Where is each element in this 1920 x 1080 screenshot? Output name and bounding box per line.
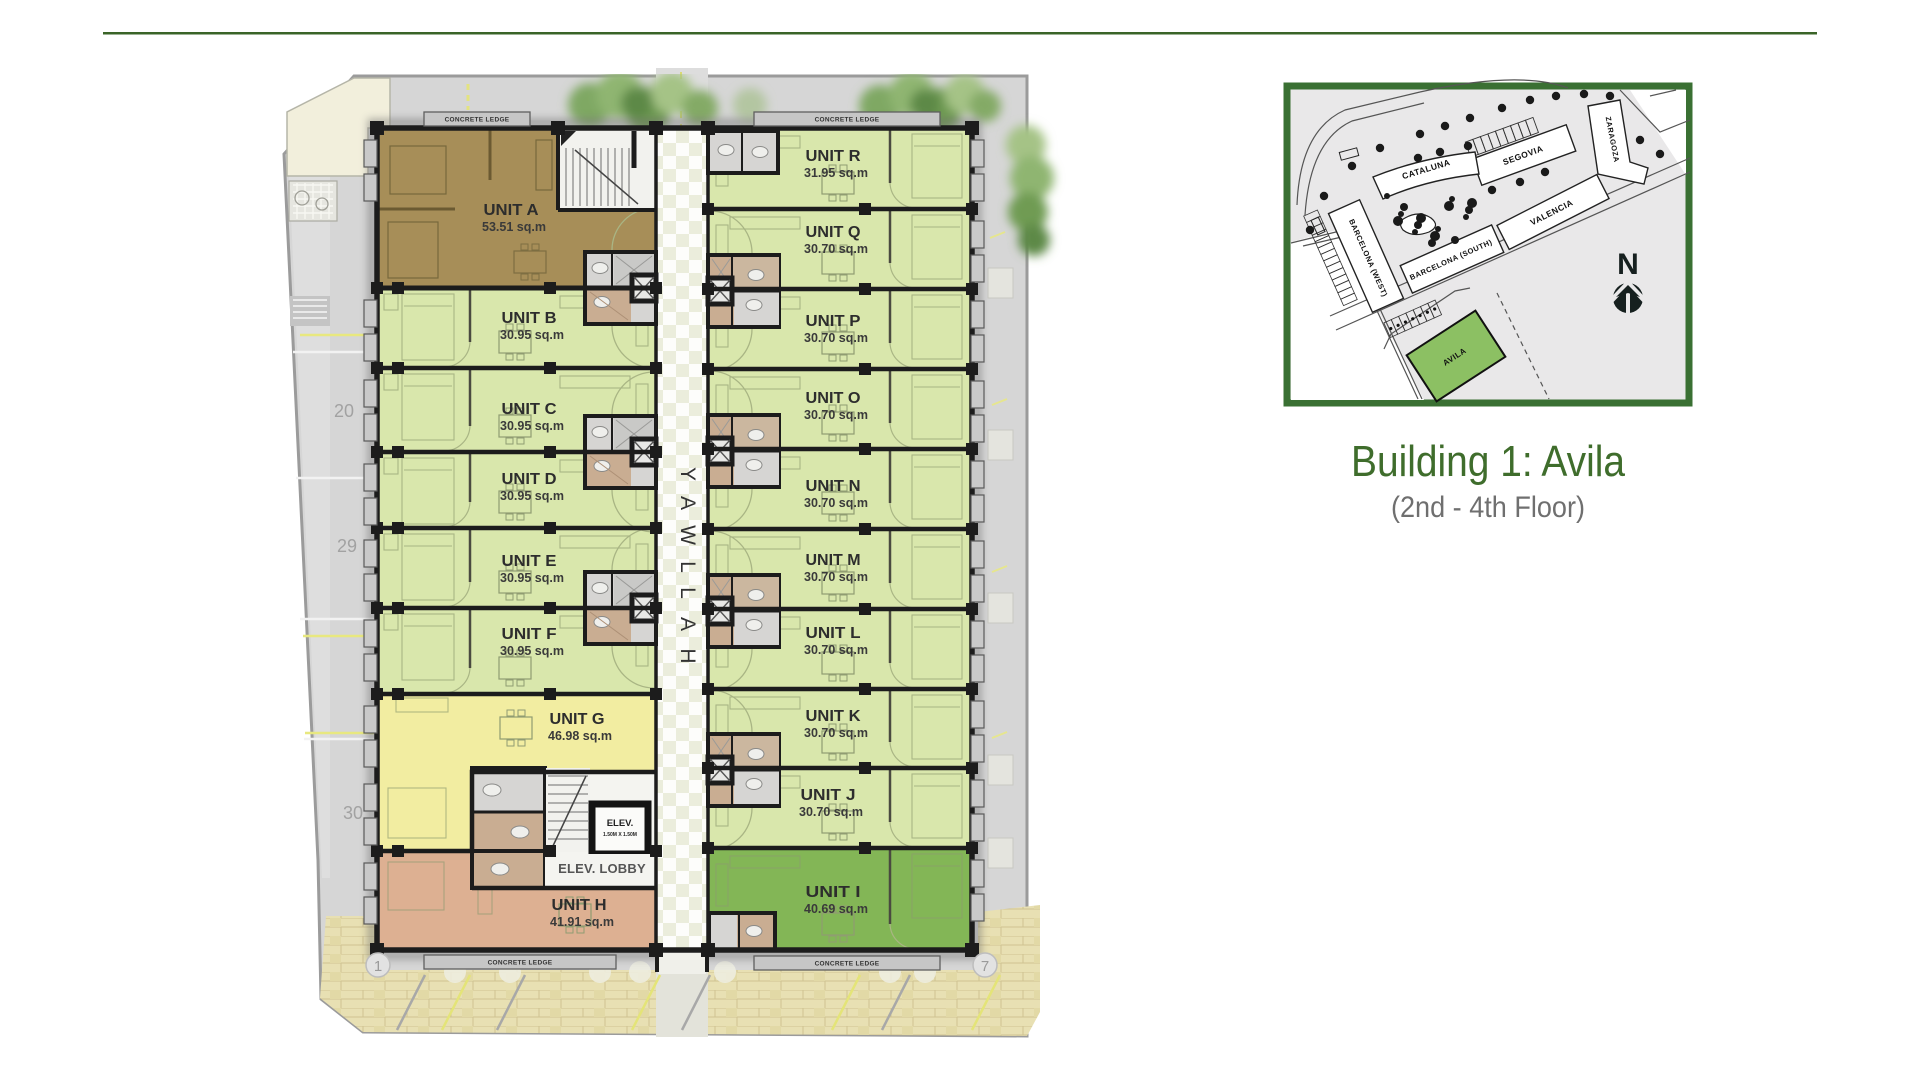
svg-text:30.70 sq.m: 30.70 sq.m (804, 495, 868, 510)
svg-text:53.51 sq.m: 53.51 sq.m (482, 219, 546, 234)
svg-text:UNIT R: UNIT R (806, 148, 861, 165)
svg-text:UNIT N: UNIT N (806, 478, 861, 495)
svg-text:UNIT G: UNIT G (550, 711, 605, 728)
svg-text:30.70 sq.m: 30.70 sq.m (804, 642, 868, 657)
svg-text:Building 1: Avila: Building 1: Avila (1351, 437, 1625, 486)
svg-text:30.95 sq.m: 30.95 sq.m (500, 570, 564, 585)
svg-text:7: 7 (981, 958, 989, 975)
svg-text:UNIT F: UNIT F (502, 626, 557, 643)
svg-text:UNIT Q: UNIT Q (806, 224, 861, 241)
svg-text:W: W (676, 525, 699, 545)
svg-text:CONCRETE LEDGE: CONCRETE LEDGE (815, 117, 880, 124)
svg-text:1.50M X 1.50M: 1.50M X 1.50M (603, 832, 637, 838)
svg-text:30.70 sq.m: 30.70 sq.m (804, 407, 868, 422)
svg-text:30.70 sq.m: 30.70 sq.m (804, 725, 868, 740)
svg-text:UNIT M: UNIT M (806, 552, 861, 569)
svg-text:30.95 sq.m: 30.95 sq.m (500, 327, 564, 342)
svg-text:UNIT E: UNIT E (502, 553, 557, 570)
svg-text:UNIT D: UNIT D (502, 471, 557, 488)
svg-text:31.95 sq.m: 31.95 sq.m (804, 165, 868, 180)
svg-text:UNIT K: UNIT K (806, 708, 861, 725)
svg-text:41.91 sq.m: 41.91 sq.m (550, 914, 614, 929)
svg-text:CONCRETE LEDGE: CONCRETE LEDGE (445, 117, 510, 124)
svg-text:A: A (676, 496, 699, 510)
svg-text:UNIT L: UNIT L (806, 625, 861, 642)
svg-text:30: 30 (343, 803, 363, 823)
svg-text:20: 20 (334, 401, 354, 421)
svg-text:30.70 sq.m: 30.70 sq.m (804, 569, 868, 584)
svg-text:29: 29 (337, 536, 357, 556)
svg-text:UNIT H: UNIT H (552, 897, 607, 914)
svg-text:30.95 sq.m: 30.95 sq.m (500, 418, 564, 433)
svg-text:UNIT C: UNIT C (502, 401, 557, 418)
svg-text:CONCRETE LEDGE: CONCRETE LEDGE (488, 960, 553, 967)
svg-text:(2nd - 4th Floor): (2nd - 4th Floor) (1391, 491, 1585, 524)
svg-text:N: N (1617, 248, 1639, 281)
svg-text:UNIT B: UNIT B (502, 310, 557, 327)
svg-text:UNIT I: UNIT I (806, 884, 861, 901)
svg-text:A: A (676, 617, 699, 631)
svg-text:L: L (676, 587, 699, 599)
svg-text:30.70 sq.m: 30.70 sq.m (804, 330, 868, 345)
svg-text:CONCRETE LEDGE: CONCRETE LEDGE (815, 961, 880, 968)
svg-text:30.70 sq.m: 30.70 sq.m (799, 804, 863, 819)
svg-text:30.70 sq.m: 30.70 sq.m (804, 241, 868, 256)
svg-text:Y: Y (676, 467, 699, 481)
svg-text:ELEV.: ELEV. (607, 818, 634, 829)
svg-text:40.69 sq.m: 40.69 sq.m (804, 901, 868, 916)
svg-text:UNIT P: UNIT P (806, 313, 861, 330)
svg-text:L: L (676, 561, 699, 573)
svg-text:1: 1 (374, 958, 382, 975)
svg-text:UNIT A: UNIT A (484, 202, 539, 219)
svg-text:46.98 sq.m: 46.98 sq.m (548, 728, 612, 743)
svg-text:30.95 sq.m: 30.95 sq.m (500, 643, 564, 658)
svg-text:H: H (676, 648, 699, 663)
svg-text:30.95 sq.m: 30.95 sq.m (500, 488, 564, 503)
svg-text:ELEV. LOBBY: ELEV. LOBBY (558, 861, 646, 876)
svg-text:UNIT J: UNIT J (801, 787, 856, 804)
svg-text:UNIT O: UNIT O (806, 390, 861, 407)
